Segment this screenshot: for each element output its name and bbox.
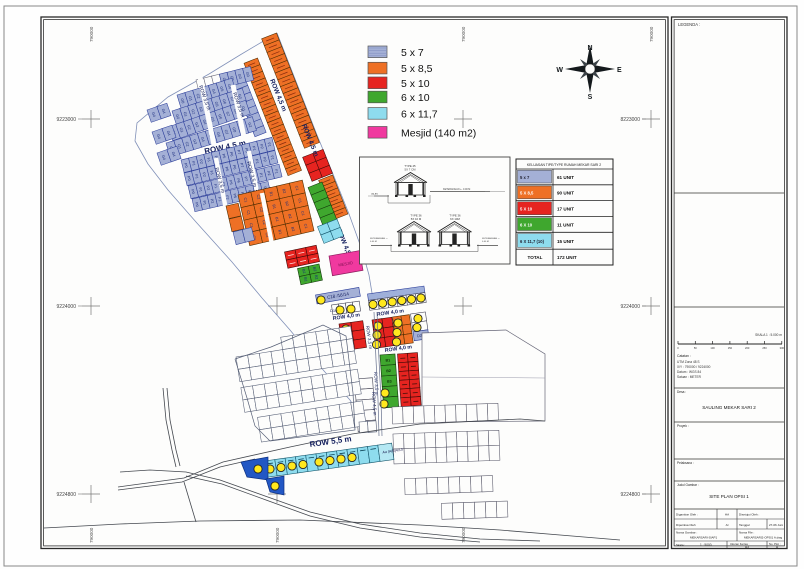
svg-text:HA: HA bbox=[725, 513, 729, 517]
svg-text:LEGENDA :: LEGENDA : bbox=[678, 22, 700, 27]
svg-text:Desa :: Desa : bbox=[677, 390, 686, 394]
svg-text:X/Y : 790000 / 9224000: X/Y : 790000 / 9224000 bbox=[677, 365, 711, 369]
svg-text:5 x 7: 5 x 7 bbox=[520, 175, 530, 180]
svg-text:B1: B1 bbox=[385, 358, 390, 362]
svg-text:6 X 10: 6 X 10 bbox=[520, 222, 533, 227]
svg-text:KETERANGAN +-: KETERANGAN +- bbox=[482, 237, 500, 240]
svg-text:8223000: 8223000 bbox=[621, 117, 641, 123]
svg-text:17 UNIT: 17 UNIT bbox=[557, 207, 574, 212]
svg-text:150: 150 bbox=[728, 346, 733, 350]
svg-text:9224000: 9224000 bbox=[621, 304, 641, 310]
svg-text:Skala :: Skala : bbox=[676, 543, 685, 547]
svg-text:MEKARSARI-SIAP1: MEKARSARI-SIAP1 bbox=[690, 536, 718, 540]
svg-text:SAULING MEKAR SARI 2: SAULING MEKAR SARI 2 bbox=[702, 405, 756, 410]
svg-text:5 x 7: 5 x 7 bbox=[401, 47, 424, 59]
svg-text:0.00 M: 0.00 M bbox=[482, 241, 489, 243]
svg-text:6 x 10: 6 x 10 bbox=[401, 92, 430, 104]
svg-text:AI: AI bbox=[726, 523, 729, 527]
svg-text:9224800: 9224800 bbox=[57, 492, 77, 498]
svg-text:B3: B3 bbox=[387, 379, 392, 383]
svg-text:9223000: 9223000 bbox=[57, 117, 77, 123]
svg-text:790000: 790000 bbox=[89, 26, 94, 42]
svg-text:D19: D19 bbox=[330, 308, 338, 313]
svg-text:790000: 790000 bbox=[275, 527, 280, 543]
svg-text:JALAN: JALAN bbox=[371, 193, 378, 196]
svg-text:27-06 Juni: 27-06 Juni bbox=[769, 523, 783, 527]
svg-text:1 : 5000: 1 : 5000 bbox=[700, 543, 712, 547]
svg-text:MEKARSARI2-OPSI1 A.dwg: MEKARSARI2-OPSI1 A.dwg bbox=[744, 536, 783, 540]
svg-text:Diperiksa Oleh: Diperiksa Oleh bbox=[676, 523, 696, 527]
svg-text:Tanggal: Tanggal bbox=[739, 523, 750, 527]
svg-text:E: E bbox=[617, 67, 622, 74]
svg-text:Datum : WGS 84: Datum : WGS 84 bbox=[677, 370, 701, 374]
svg-text:Judul Gambar :: Judul Gambar : bbox=[677, 483, 699, 487]
svg-text:Digambar Oleh :: Digambar Oleh : bbox=[676, 513, 698, 517]
svg-text:Pelaksana :: Pelaksana : bbox=[677, 461, 694, 465]
svg-text:6 X 11,7 (10): 6 X 11,7 (10) bbox=[520, 239, 545, 244]
svg-text:6 x 11,7: 6 x 11,7 bbox=[401, 108, 438, 120]
svg-text:SKALA 1 : 5.000 m: SKALA 1 : 5.000 m bbox=[755, 333, 782, 337]
svg-text:UTM Zona 48 S: UTM Zona 48 S bbox=[677, 360, 700, 364]
svg-text:KELUASAN TIPE/TYPE RUMAH MEKAR: KELUASAN TIPE/TYPE RUMAH MEKAR SARI 2 bbox=[527, 163, 601, 167]
svg-text:5X 10 M: 5X 10 M bbox=[411, 217, 422, 221]
svg-text:5 X 10: 5 X 10 bbox=[520, 207, 533, 212]
svg-text:W: W bbox=[556, 67, 563, 74]
svg-text:SITE PLAN OPSI 1: SITE PLAN OPSI 1 bbox=[709, 494, 749, 499]
svg-text:172 UNIT: 172 UNIT bbox=[557, 255, 577, 260]
svg-text:Disetujui Oleh :: Disetujui Oleh : bbox=[739, 513, 760, 517]
svg-text:790000: 790000 bbox=[89, 527, 94, 543]
svg-text:6X 10M: 6X 10M bbox=[450, 217, 460, 221]
svg-text:9224000: 9224000 bbox=[57, 304, 77, 310]
svg-text:KETERANGAN +-: KETERANGAN +- bbox=[370, 237, 388, 240]
svg-text:11 UNIT: 11 UNIT bbox=[557, 222, 574, 227]
svg-text:61 UNIT: 61 UNIT bbox=[557, 175, 574, 180]
svg-text:A3: A3 bbox=[745, 545, 749, 549]
svg-text:B2: B2 bbox=[386, 369, 391, 373]
svg-text:200: 200 bbox=[745, 346, 750, 350]
svg-text:9224800: 9224800 bbox=[621, 492, 641, 498]
svg-text:790000: 790000 bbox=[649, 26, 654, 42]
svg-text:S: S bbox=[588, 94, 593, 101]
svg-text:TOTAL: TOTAL bbox=[528, 255, 543, 260]
svg-text:N: N bbox=[587, 45, 592, 52]
svg-text:Mesjid (140 m2): Mesjid (140 m2) bbox=[401, 127, 476, 139]
svg-text:No. Plot :: No. Plot : bbox=[769, 542, 781, 546]
svg-text:15 UNIT: 15 UNIT bbox=[557, 239, 574, 244]
svg-text:0.00 M: 0.00 M bbox=[370, 241, 377, 243]
svg-text:Nama File :: Nama File : bbox=[739, 531, 755, 535]
svg-text:100: 100 bbox=[710, 346, 715, 350]
svg-text:Satuan : METER: Satuan : METER bbox=[677, 375, 702, 379]
svg-text:Nama Gambar :: Nama Gambar : bbox=[676, 531, 698, 535]
svg-text:Catatan :: Catatan : bbox=[677, 354, 691, 358]
svg-text:5X 7 CM: 5X 7 CM bbox=[405, 168, 417, 172]
svg-text:5 x 8,5: 5 x 8,5 bbox=[401, 63, 433, 75]
svg-text:250: 250 bbox=[762, 346, 767, 350]
svg-text:Proyek :: Proyek : bbox=[677, 424, 689, 428]
svg-text:KETERANGAN +- 0.00 M: KETERANGAN +- 0.00 M bbox=[443, 188, 470, 191]
svg-text:5 x 10: 5 x 10 bbox=[401, 78, 430, 90]
svg-text:790000: 790000 bbox=[461, 26, 466, 42]
svg-text:90 UNIT: 90 UNIT bbox=[557, 191, 574, 196]
svg-text:5 X 8,5: 5 X 8,5 bbox=[520, 191, 534, 196]
svg-text:300: 300 bbox=[780, 346, 785, 350]
